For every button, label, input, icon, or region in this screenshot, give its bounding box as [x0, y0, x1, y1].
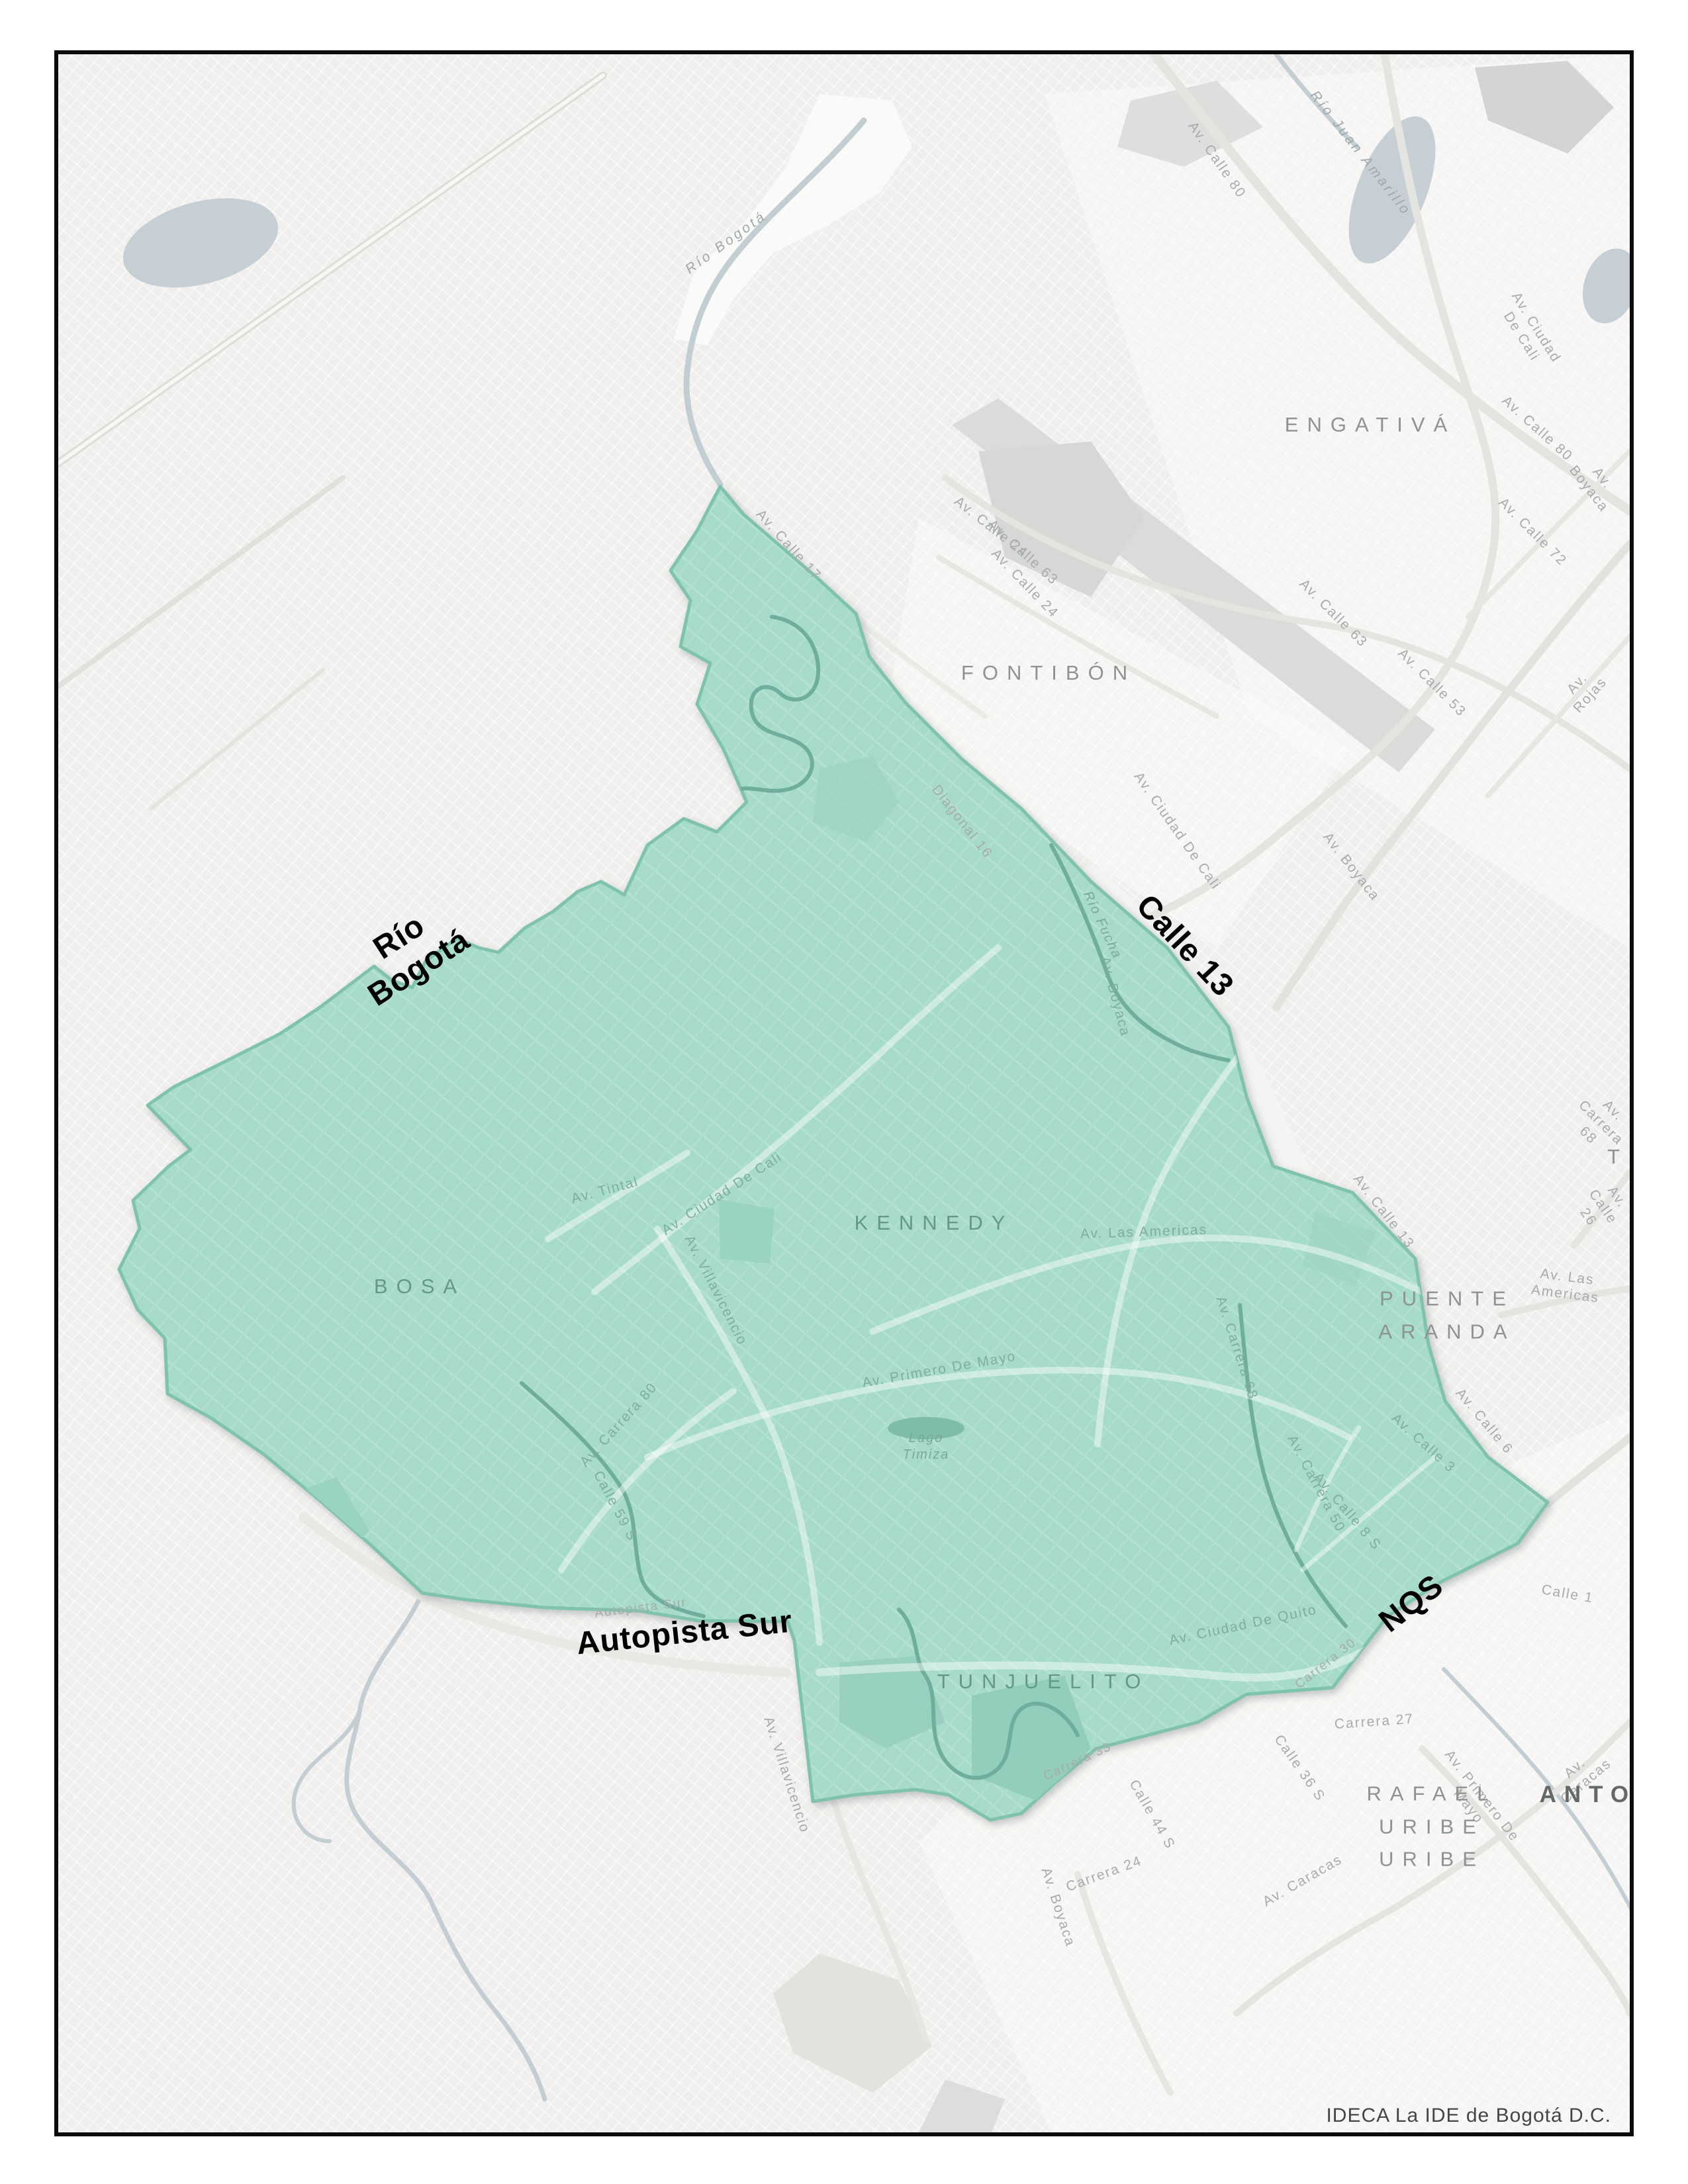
street-label-av-ciudad-de-cali: Av. Ciudad De Cali	[1487, 280, 1570, 385]
street-label-av-villavicencio: Av. Villavicencio	[759, 1715, 814, 1836]
street-label-calle-44-s: Calle 44 S	[1125, 1777, 1178, 1852]
street-label-av-calle-6: Av. Calle 6	[1452, 1385, 1517, 1458]
map-frame: Río BogotáAv. Calle 80Río Juan AmarilloA…	[54, 50, 1634, 2136]
street-label-av-las-americas: Av. Las Americas	[1530, 1265, 1602, 1308]
labels-layer: Río BogotáAv. Calle 80Río Juan AmarilloA…	[58, 54, 1630, 2132]
street-label-av-calle-72: Av. Calle 72	[1495, 494, 1570, 570]
street-label-av-carrera-80: Av. Carrera 80	[577, 1379, 661, 1471]
street-label-av-carrera-50: Av. Carrera 50	[1283, 1432, 1349, 1535]
street-label-av-calle-80: Av. Calle 80	[1498, 392, 1576, 465]
street-label-av-ciudad-de-quito: Av. Ciudad De Quito	[1168, 1602, 1319, 1650]
street-label-calle-1: Calle 1	[1540, 1581, 1595, 1608]
street-label-calle-36-s: Calle 36 S	[1270, 1732, 1329, 1805]
street-label-av-calle-63: Av. Calle 63	[984, 516, 1062, 589]
district-label-fontib-n: FONTIBÓN	[961, 657, 1136, 690]
district-label-puente-aranda: PUENTE ARANDA	[1356, 1282, 1538, 1347]
map-attribution: IDECA La IDE de Bogotá D.C.	[1326, 2105, 1611, 2127]
street-label-av-boyaca: Av. Boyaca	[1565, 452, 1626, 516]
street-label-av-primero-de-mayo: Av. Primero De Mayo	[1413, 1730, 1536, 1874]
street-label-av-tintal: Av. Tintal	[569, 1173, 641, 1208]
district-label-teusaquillo: TEUSAQUILLO	[1607, 1140, 1630, 1173]
district-label-engativ: ENGATIVÁ	[1285, 408, 1456, 441]
street-label-av-carrera-68: Av. Carrera 68	[1211, 1295, 1261, 1402]
street-label-av-rojas: Av. Rojas	[1556, 661, 1612, 718]
street-label-calle-59-s: Calle 59 S	[589, 1468, 641, 1545]
street-label-av-ciudad-de-cali: Av. Ciudad De Cali	[659, 1148, 786, 1239]
highlight-label-nqs: NQS	[1372, 1567, 1450, 1639]
street-label-av-calle-13: Av. Calle 13	[1349, 1171, 1418, 1253]
street-label-diagonal-16: Diagonal 16	[927, 782, 996, 862]
page: { "map": { "attribution": "IDECA La IDE …	[0, 0, 1688, 2184]
street-label-av-calle-26: Av. Calle 26	[1570, 1177, 1630, 1238]
street-label-av-calle-80: Av. Calle 80	[1184, 118, 1249, 202]
street-label-autopista-sur: Autopista Sur	[594, 1595, 688, 1622]
street-label-av-carrera-68: Av. Carrera 68	[1562, 1085, 1630, 1161]
street-label-av-calle-24: Av. Calle 24	[988, 545, 1062, 622]
highlight-label-autopista-sur: Autopista Sur	[575, 1603, 794, 1662]
street-label-r-o-bogot: Río Bogotá	[682, 208, 771, 279]
street-label-lago-timiza: Lago Timiza	[903, 1430, 950, 1463]
street-label-av-primero-de-mayo: Av. Primero De Mayo	[861, 1348, 1018, 1392]
district-label-antonio: ANTONIO	[1540, 1780, 1630, 1809]
street-label-av-calle-53: Av. Calle 53	[1394, 645, 1470, 721]
street-label-carrera-30: Carrera 30	[1292, 1635, 1360, 1693]
street-label-carrera-24: Carrera 24	[1064, 1852, 1145, 1896]
district-label-bosa: BOSA	[374, 1270, 465, 1303]
street-label-av-villavicencio: Av. Villavicencio	[680, 1232, 751, 1348]
street-label-av-boyaca: Av. Boyaca	[1037, 1866, 1078, 1949]
street-label-av-calle-17: Av. Calle 17	[752, 506, 825, 584]
street-label-av-calle-3: Av. Calle 3	[1387, 1410, 1459, 1477]
district-label-kennedy: KENNEDY	[855, 1206, 1014, 1240]
district-label-rafael-uribe-uribe: RAFAEL URIBE URIBE	[1333, 1778, 1531, 1876]
street-label-av-caracas: Av. Caracas	[1546, 1742, 1615, 1807]
street-label-av-calle-63: Av. Calle 63	[1295, 576, 1371, 651]
street-label-av-calle-8-s: Av. Calle 8 S	[1309, 1469, 1385, 1554]
street-label-av-las-americas: Av. Las Americas	[1080, 1222, 1207, 1244]
street-label-av-caracas: Av. Caracas	[1260, 1851, 1346, 1911]
street-label-carrera-27: Carrera 27	[1334, 1711, 1415, 1734]
street-label-carrera-33: Carrera 33	[1041, 1739, 1114, 1784]
street-label-av-boyaca: Av. Boyaca	[1096, 955, 1134, 1039]
highlight-label-r-o-bogot: Río Bogotá	[342, 891, 477, 1014]
street-label-av-boyaca: Av. Boyaca	[1319, 829, 1383, 905]
street-label-r-o-juan-amarillo: Río Juan Amarillo	[1306, 87, 1415, 220]
district-label-tunjuelito: TUNJUELITO	[937, 1665, 1150, 1698]
street-label-av-calle-24: Av. Calle 24	[951, 493, 1032, 562]
street-label-av-ciudad-de-cali: Av. Ciudad De Cali	[1130, 769, 1225, 893]
highlight-label-calle-13: Calle 13	[1129, 887, 1241, 1004]
street-label-r-o-fucha: Río Fucha	[1079, 889, 1125, 962]
map-canvas: Río BogotáAv. Calle 80Río Juan AmarilloA…	[58, 54, 1630, 2132]
